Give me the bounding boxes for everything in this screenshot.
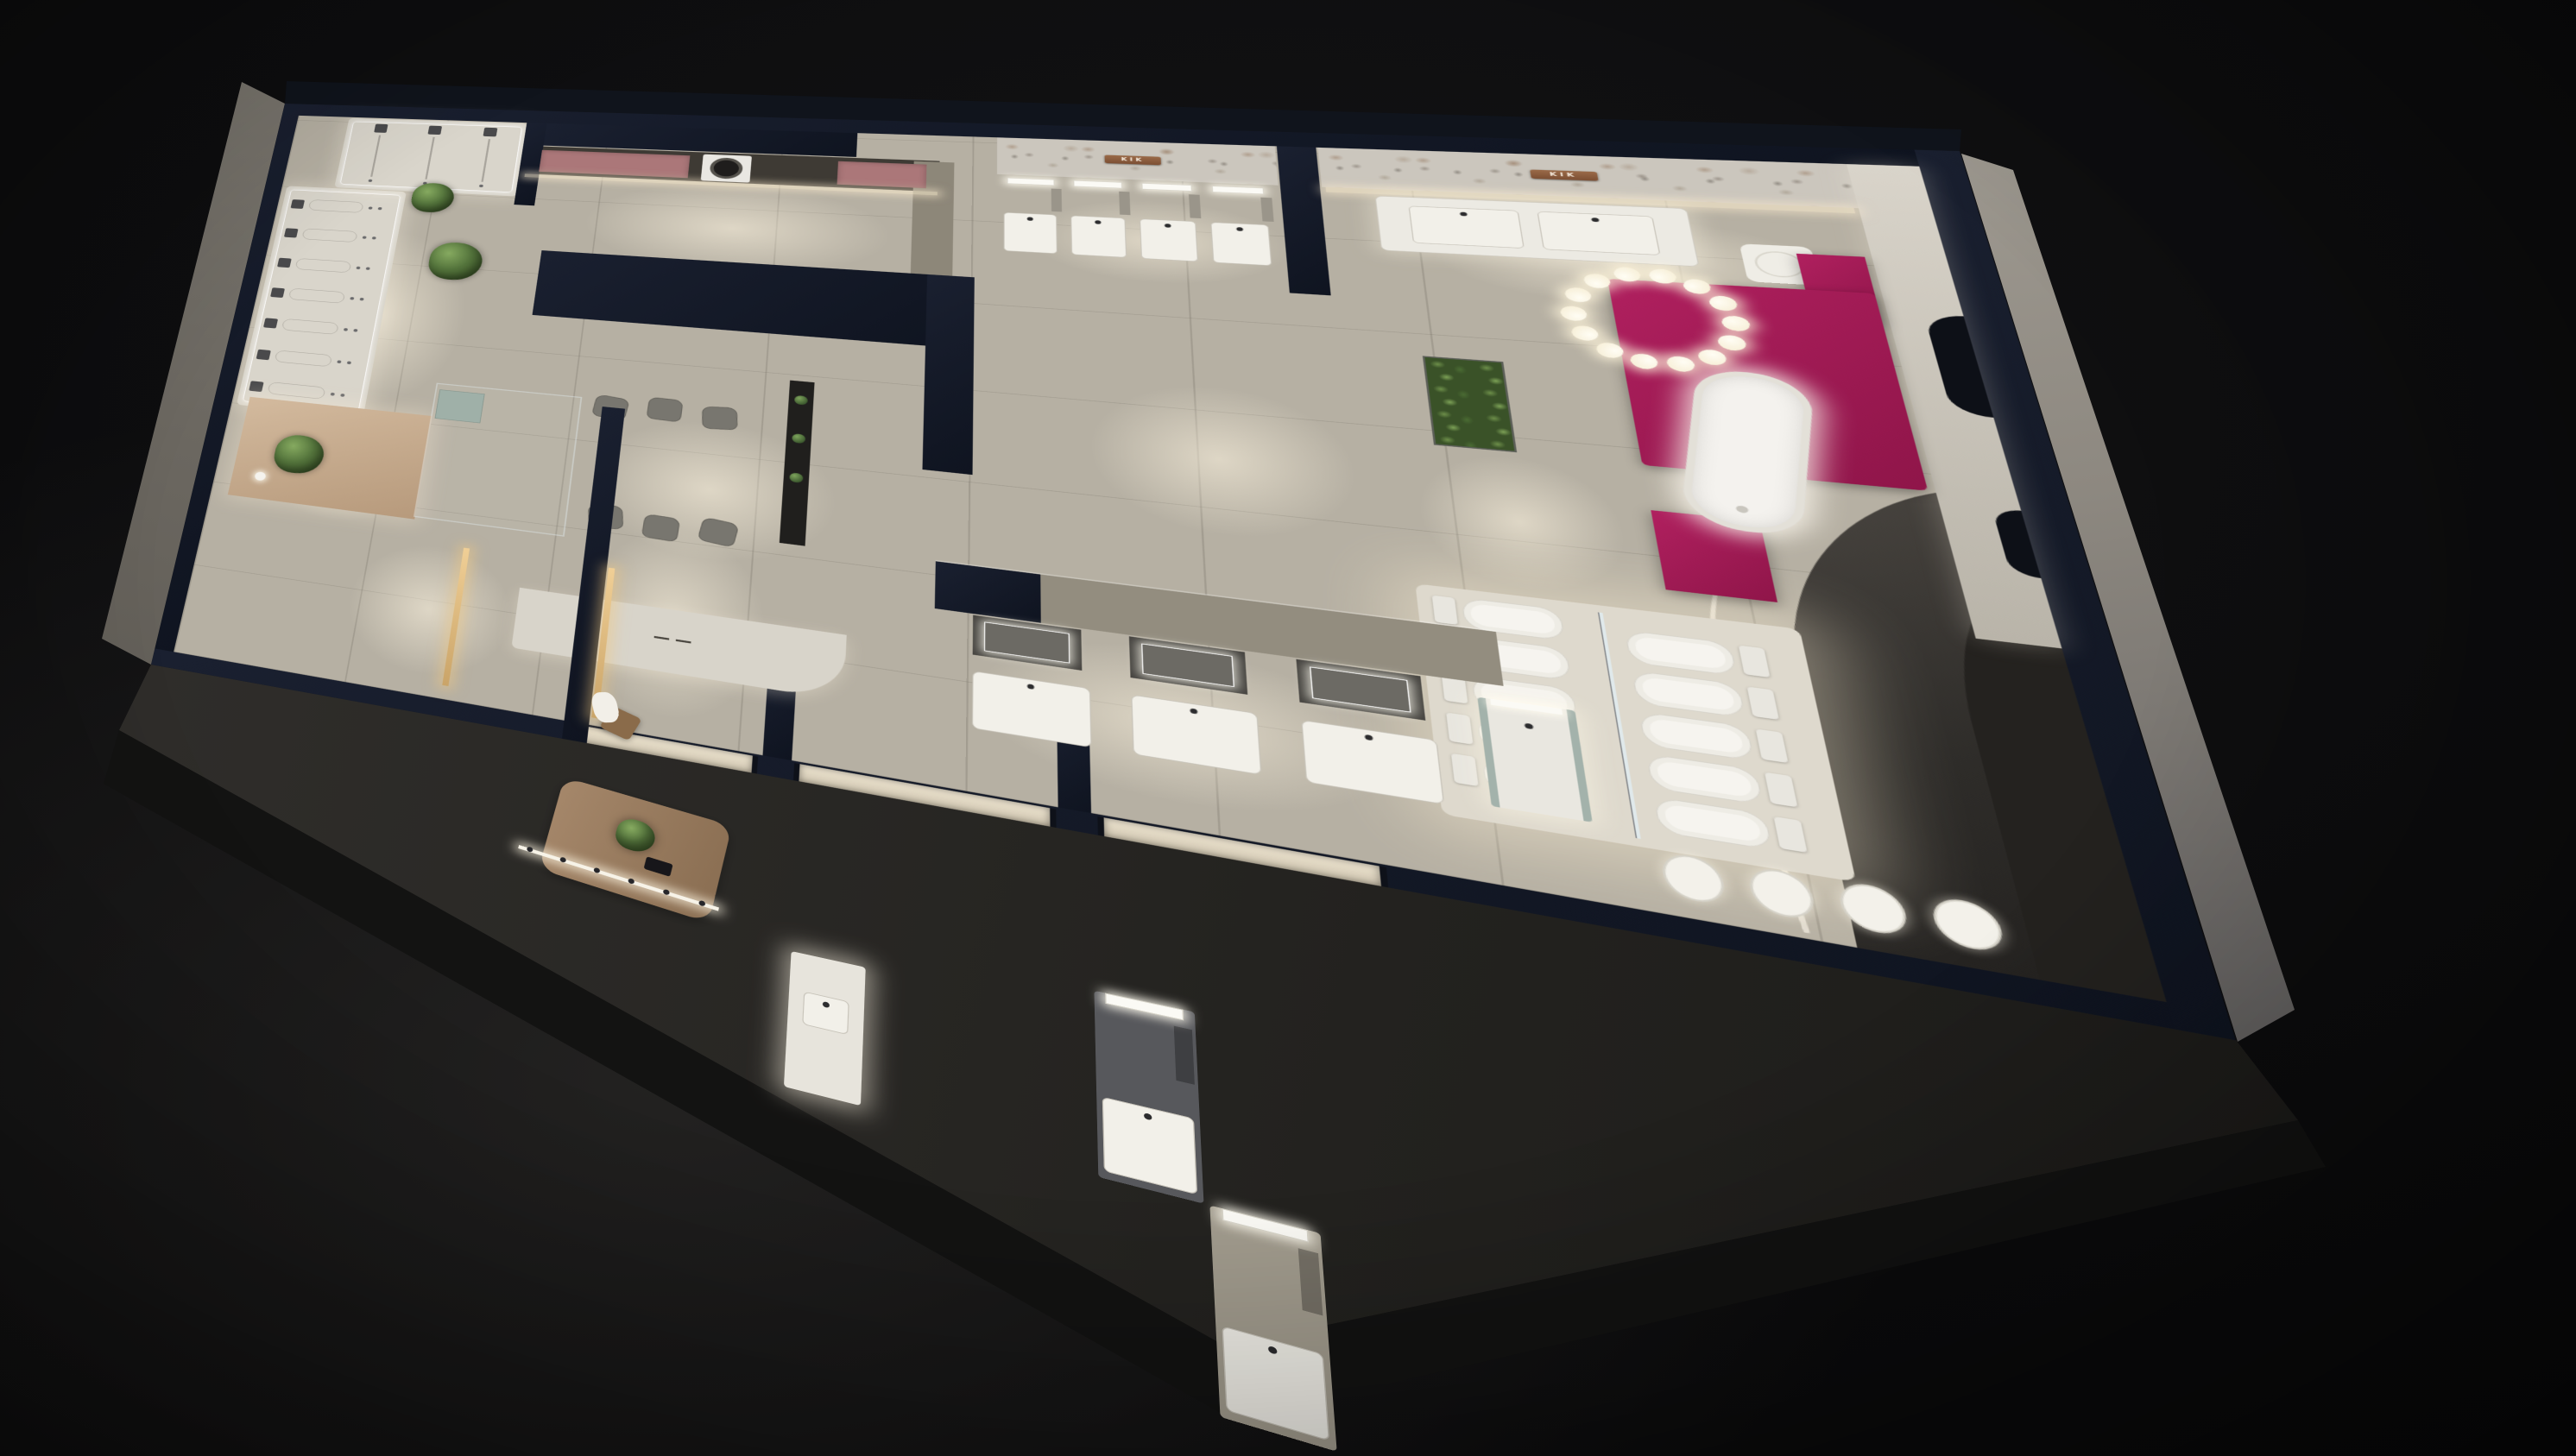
plant-pot [794, 395, 808, 406]
hand-shower-icon [331, 393, 335, 396]
side-shelf [1189, 194, 1201, 218]
shower-head-icon [374, 124, 388, 133]
led-mirror [1222, 1208, 1309, 1243]
light-sphere [1663, 356, 1698, 373]
sphere-pendant-light [1546, 259, 1769, 382]
led-mirror [1212, 186, 1265, 194]
wash-basin [802, 992, 849, 1036]
display-tower-sink [784, 951, 866, 1106]
shower-fixture [255, 342, 367, 377]
light-sphere [1567, 324, 1603, 343]
chair [646, 396, 683, 422]
wash-basin [1222, 1326, 1329, 1441]
wall-vanity-row [1001, 178, 1284, 270]
led-mirror [1073, 180, 1122, 188]
wash-basin [1210, 222, 1272, 266]
light-sphere [1591, 339, 1628, 361]
wash-basin [1140, 218, 1198, 262]
vanity-unit-light [1209, 1205, 1336, 1451]
light-sphere [1579, 271, 1616, 291]
light-sphere [1714, 332, 1750, 354]
hand-shower-icon [368, 180, 372, 182]
shower-rail-icon [308, 199, 364, 213]
shower-head-icon [256, 350, 271, 361]
vanity-unit-dark [1094, 991, 1203, 1204]
hand-shower-icon [363, 236, 367, 239]
toilet-column-east [1617, 627, 1808, 856]
shower-head-icon [277, 257, 292, 268]
shower-fixture [275, 250, 384, 281]
hand-shower-icon [369, 206, 373, 209]
shower-head-icon [291, 199, 305, 209]
led-mirror [1105, 993, 1184, 1020]
led-mirror [1141, 183, 1192, 192]
plant-pot [792, 433, 805, 444]
light-sphere [1704, 293, 1743, 312]
light-sphere [1629, 351, 1659, 371]
hand-shower-icon [353, 329, 357, 332]
shower-rail-icon [275, 350, 332, 367]
wash-basin [1004, 212, 1058, 254]
wall-vanity [1066, 180, 1132, 262]
dining-table [539, 777, 732, 923]
hand-shower-icon [344, 328, 348, 331]
shower-rail-icon [301, 229, 357, 243]
hand-shower-icon [372, 236, 376, 239]
hand-shower-icon [366, 267, 370, 270]
chair [702, 407, 737, 431]
open-shelf [1174, 1026, 1195, 1085]
brand-sign-text: KIK [1121, 157, 1145, 163]
floorplan: KIK [151, 104, 2236, 1040]
shower-column [474, 128, 497, 190]
hand-shower-icon [356, 266, 360, 269]
showroom-scene: KIK [0, 0, 2576, 1456]
shower-column [418, 126, 442, 187]
shower-head-icon [427, 126, 442, 135]
light-sphere [1562, 285, 1595, 305]
shower-rail-icon [481, 139, 490, 182]
shower-head-icon [483, 128, 498, 137]
shower-head-icon [249, 381, 263, 392]
shower-fixture [282, 221, 390, 251]
wall-vanity [1204, 186, 1278, 269]
island-vanity [958, 613, 1108, 753]
hand-shower-icon [337, 360, 341, 363]
shower-rail-icon [267, 381, 325, 400]
shower-head-icon [263, 318, 278, 328]
mint-cabinet [435, 389, 485, 423]
light-sphere [1610, 266, 1644, 282]
hand-shower-icon [340, 394, 344, 397]
side-shelf [1260, 198, 1273, 222]
led-mirror [1007, 178, 1055, 186]
shower-rail-icon [295, 258, 352, 273]
open-shelf [1298, 1248, 1323, 1315]
brand-sign: KIK [1530, 170, 1598, 181]
table-plant [613, 816, 659, 856]
shower-rail-icon [370, 136, 381, 177]
brand-sign: KIK [1105, 155, 1161, 166]
wall-vanity [1001, 178, 1063, 258]
wash-basin [1408, 205, 1524, 248]
shower-rail-icon [288, 288, 345, 304]
wash-basin [1102, 1097, 1197, 1195]
shower-rail-icon [425, 137, 434, 180]
shower-columns [343, 123, 519, 191]
brand-sign-text: KIK [1550, 172, 1578, 179]
shower-column [363, 124, 388, 185]
light-sphere [1720, 315, 1752, 332]
side-shelf [1051, 189, 1062, 212]
shower-fixture [262, 311, 373, 344]
wall-vanity [1134, 183, 1204, 266]
serving-tray [643, 856, 672, 877]
shower-rail-icon [281, 318, 339, 335]
wash-basin [1070, 216, 1127, 258]
shower-head-icon [284, 228, 299, 237]
plant-pot [789, 472, 803, 483]
light-sphere [1648, 267, 1678, 286]
pedestal-sink [1477, 697, 1592, 823]
light-sphere [1693, 347, 1733, 369]
washing-machine [701, 154, 752, 183]
vertical-garden-wall [1423, 356, 1517, 452]
shower-fixture [268, 280, 378, 313]
chair [698, 517, 740, 548]
wash-basin [1537, 211, 1660, 255]
pink-cabinet-panel [837, 161, 927, 188]
shower-head-icon [270, 287, 285, 298]
chair [641, 514, 681, 543]
partition-wall [922, 274, 974, 475]
hand-shower-icon [479, 185, 483, 187]
hand-shower-icon [350, 297, 354, 300]
light-sphere [1559, 306, 1588, 322]
hand-shower-icon [347, 361, 351, 364]
hand-shower-icon [378, 207, 382, 210]
hand-shower-icon [360, 298, 364, 301]
shower-fixture [289, 192, 396, 221]
side-shelf [1119, 192, 1130, 215]
light-sphere [1678, 276, 1716, 297]
